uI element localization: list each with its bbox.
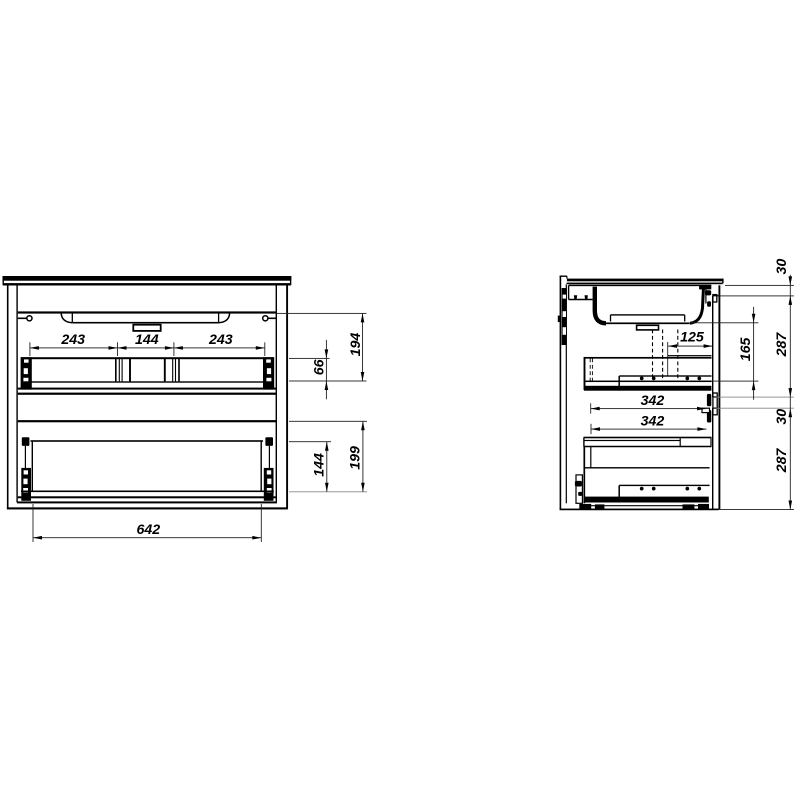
svg-text:287: 287	[774, 332, 790, 358]
svg-text:125: 125	[680, 330, 705, 346]
svg-text:342: 342	[641, 393, 665, 409]
svg-text:165: 165	[738, 336, 754, 361]
svg-text:199: 199	[348, 446, 364, 470]
svg-text:287: 287	[774, 447, 790, 473]
svg-text:243: 243	[208, 332, 233, 348]
svg-text:342: 342	[641, 413, 665, 429]
svg-text:30: 30	[774, 409, 790, 425]
svg-text:66: 66	[311, 359, 327, 375]
svg-text:642: 642	[136, 522, 160, 538]
svg-text:144: 144	[312, 453, 328, 477]
svg-text:194: 194	[348, 333, 364, 357]
svg-text:243: 243	[60, 332, 85, 348]
svg-text:30: 30	[774, 259, 790, 275]
svg-text:144: 144	[135, 332, 159, 348]
